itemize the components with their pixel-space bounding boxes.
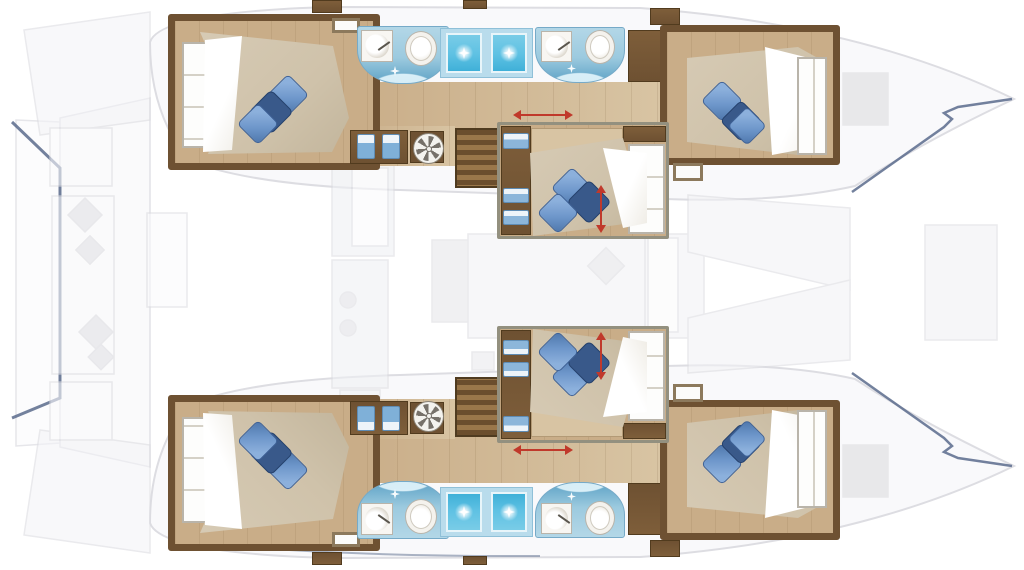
wall-section: [312, 552, 342, 565]
center-cabin-drawer: [503, 340, 529, 355]
yacht-floorplan-diagram: [0, 0, 1024, 570]
toilet-icon: [585, 501, 615, 535]
center-cabin-shelf: [623, 423, 666, 439]
red-arrow-marker-berth: [600, 339, 602, 373]
sink-icon: [361, 503, 393, 535]
center-cabin-drawer: [503, 362, 529, 377]
companionway-step: [673, 384, 703, 402]
wall-section: [650, 540, 680, 557]
deck-hatch: [332, 532, 360, 547]
step-seat: [357, 406, 375, 431]
sink-icon: [541, 503, 572, 534]
fan-icon: [414, 402, 443, 431]
wall-section: [463, 556, 487, 565]
corridor-wardrobe: [628, 483, 664, 535]
red-arrow-marker-door: [520, 449, 566, 451]
stairs-icon: [455, 377, 499, 437]
toilet-icon: [405, 499, 437, 534]
forward-cabin-wardrobe: [797, 410, 827, 508]
step-seat: [382, 406, 400, 431]
lower-hull-group: [0, 0, 1024, 565]
center-cabin-drawer: [503, 416, 529, 432]
